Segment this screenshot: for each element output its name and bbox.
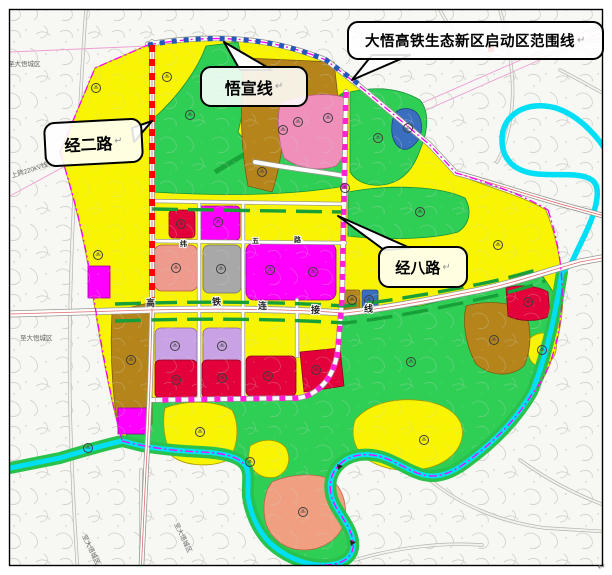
callout-jing-ba-road: 经八路↵	[378, 246, 468, 288]
callout-jing-er-road: 经二路↵	[43, 117, 144, 167]
return-mark: ↵	[114, 135, 123, 146]
return-mark: ↵	[577, 35, 586, 46]
callout-scope-line: 大悟高铁生态新区启动区范围线↵	[347, 21, 604, 60]
weiwu-char-1: 纬	[180, 239, 187, 248]
return-mark: ↵	[275, 81, 283, 92]
hsr-char-2: 铁	[212, 296, 221, 307]
callout-jing-ba-road-text: 经八路	[395, 257, 440, 278]
callout-jing-er-road-text: 经二路	[64, 130, 113, 156]
weiwu-char-3: 路	[294, 235, 302, 244]
callout-scope-line-text: 大悟高铁生态新区启动区范围线	[365, 30, 575, 51]
weiwu-char-2: 五	[252, 237, 259, 245]
edge-label-west: 至大悟城区	[20, 333, 53, 342]
hsr-char-4: 接	[311, 304, 320, 315]
return-mark: ↵	[442, 262, 450, 273]
edge-label-top-left: 至大悟城区	[8, 59, 41, 68]
planning-map: 高 铁 连 接 线 纬 五 路 至大悟城区 至大悟城区 上跨220kV线 至大悟…	[0, 0, 612, 575]
hsr-char-5: 线	[364, 303, 373, 314]
paragraph-mark: ↵	[598, 562, 606, 573]
hsr-char-3: 连	[258, 300, 268, 311]
callout-wuxuan-line: 悟宣线↵	[200, 66, 308, 107]
hsr-char-1: 高	[146, 297, 155, 308]
callout-wuxuan-line-text: 悟宣线	[225, 75, 273, 99]
